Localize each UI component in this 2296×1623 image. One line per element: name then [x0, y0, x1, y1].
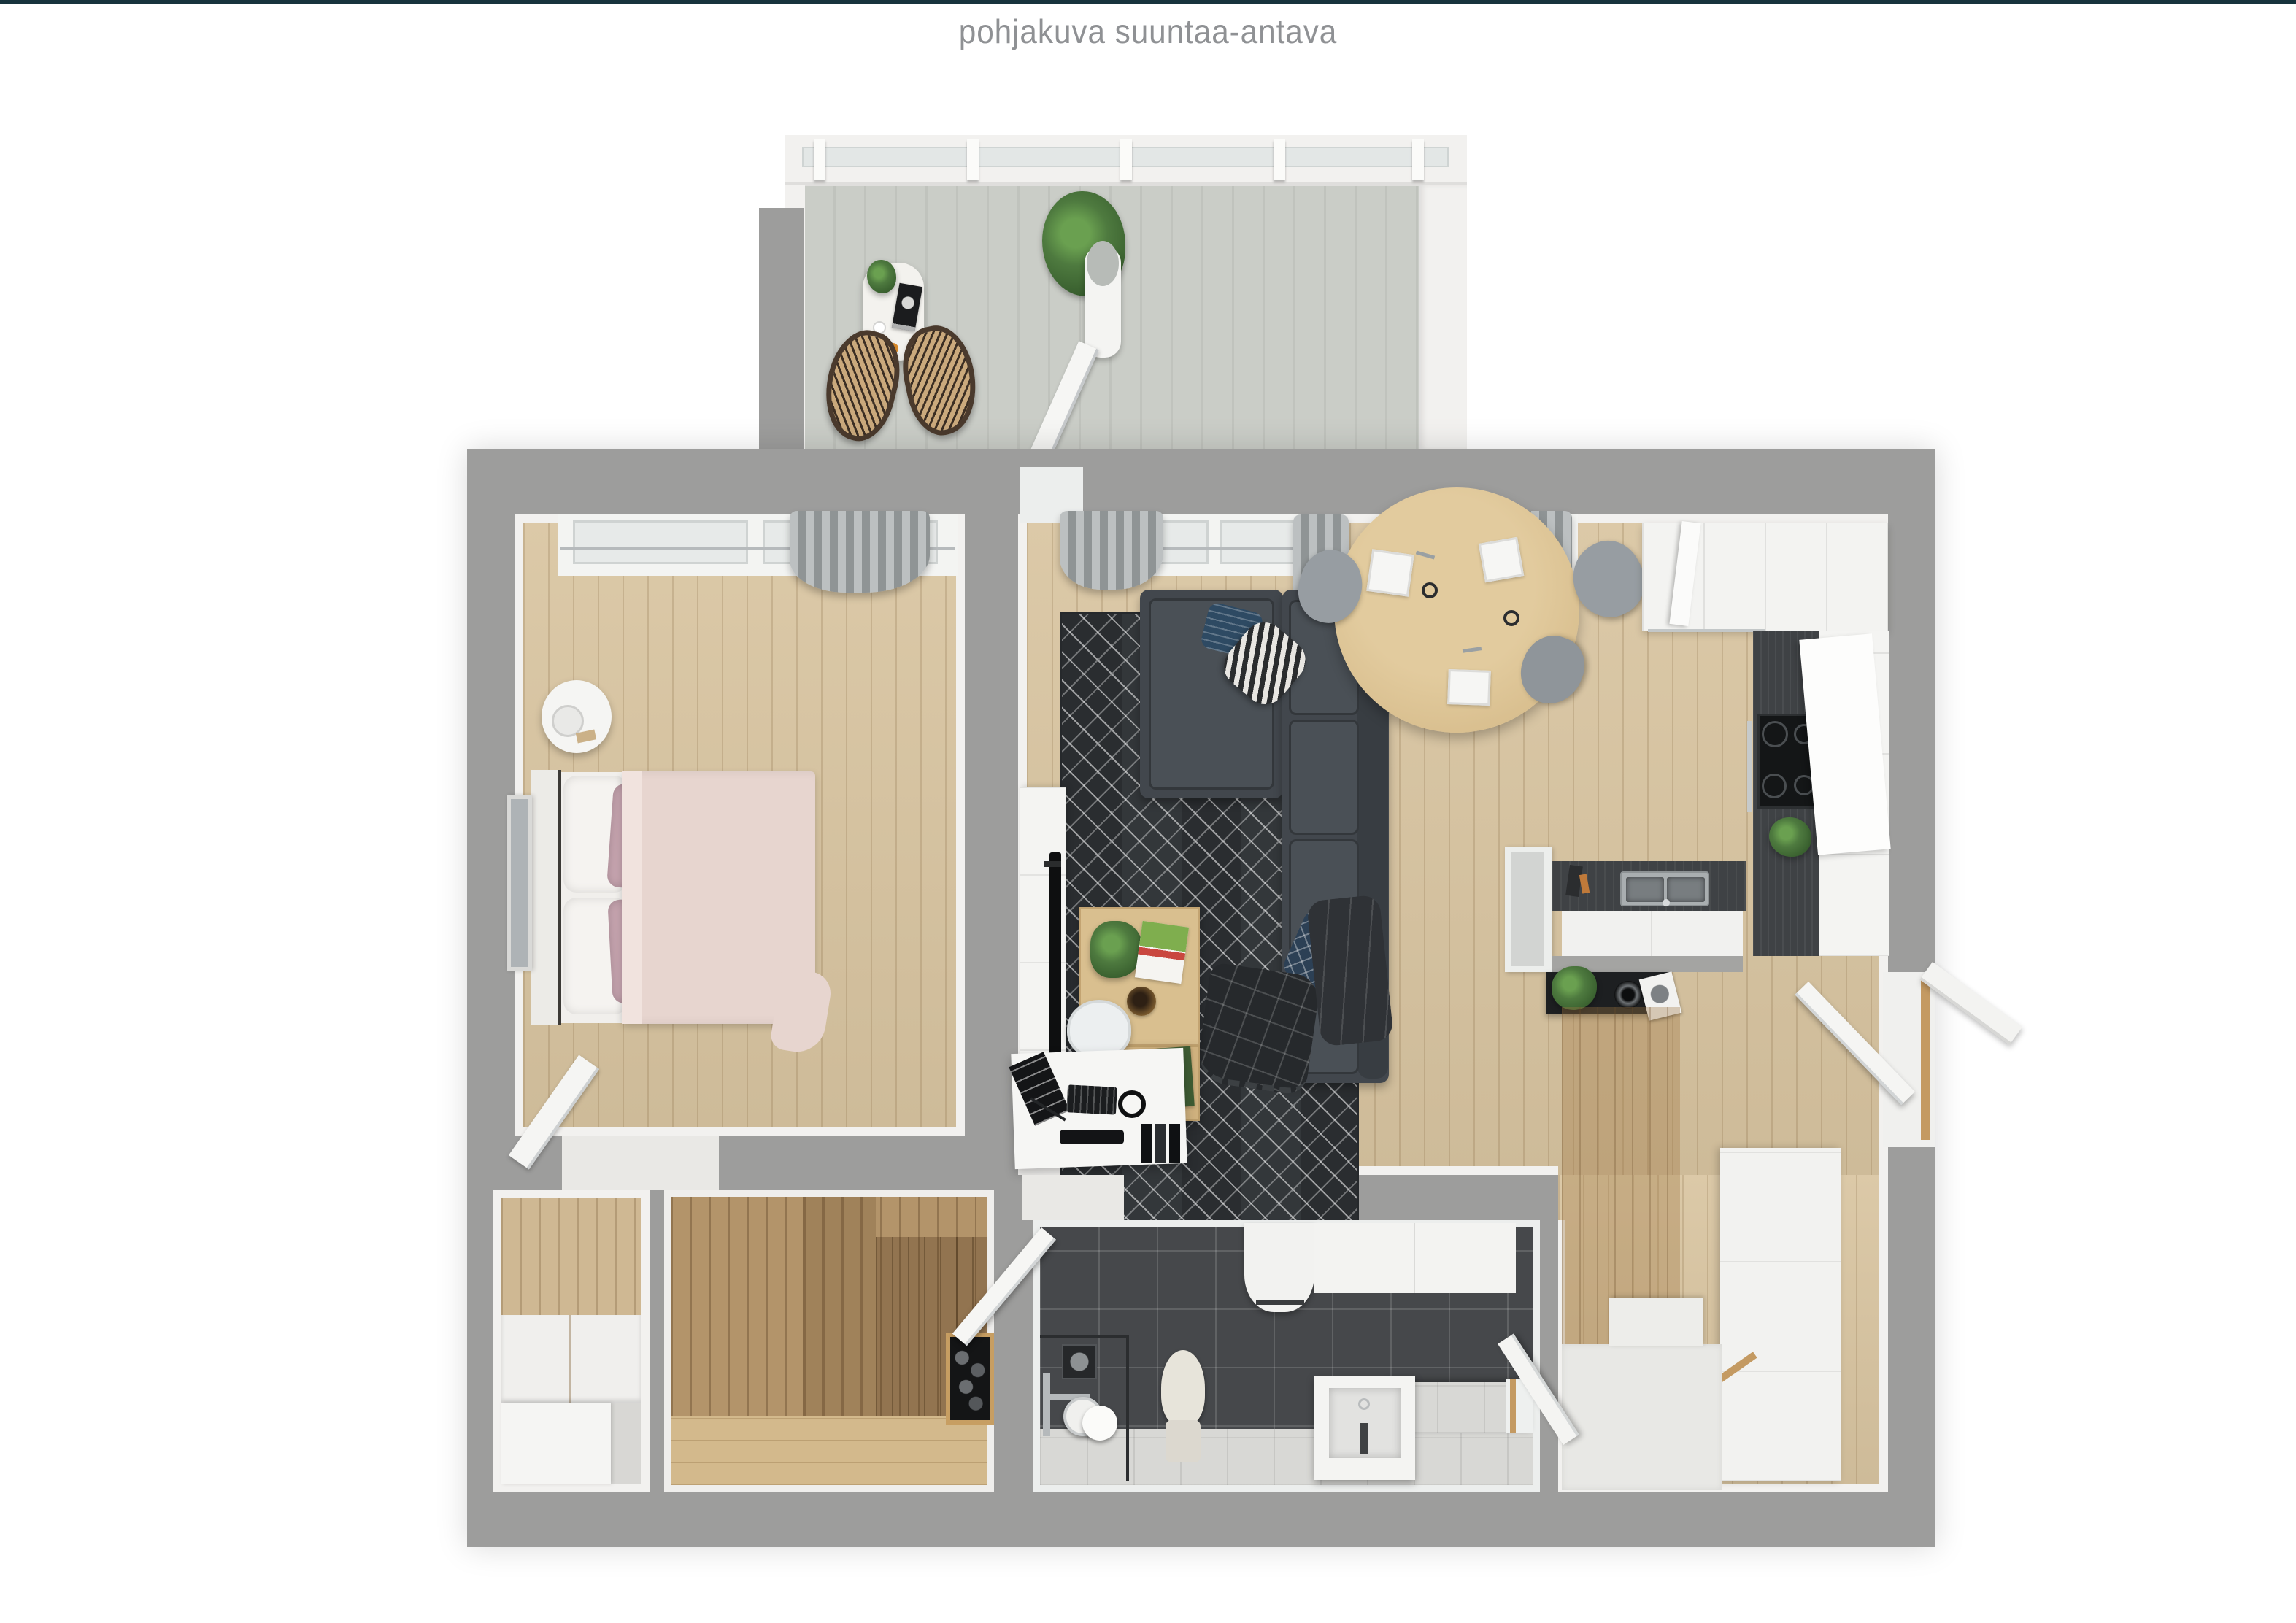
peninsula-end-top — [1511, 852, 1544, 966]
sofa-seat-cushion — [1289, 720, 1359, 835]
bathroom-cabinet — [1314, 1223, 1516, 1293]
balcony-railing-right — [1419, 185, 1467, 450]
closet-room — [493, 1190, 650, 1492]
kitchen-towel-rail — [1648, 629, 1765, 632]
railing-post — [1274, 139, 1285, 180]
dining-glass — [1422, 582, 1438, 598]
bed-headboard — [531, 770, 561, 1025]
closet-wood-wall — [501, 1198, 641, 1315]
sideboard-bowl — [1614, 981, 1642, 1009]
sofa-throw-blanket-fold — [1306, 894, 1394, 1046]
washing-machine-handle — [1256, 1300, 1304, 1305]
picture-frame — [507, 795, 532, 971]
desk-binder — [1169, 1124, 1180, 1163]
hall-entry-mat — [1562, 1344, 1722, 1490]
bathroom-doorway — [1022, 1175, 1124, 1220]
balcony-side-wall — [759, 208, 804, 450]
bedroom-curtain — [790, 511, 930, 593]
railing-post — [814, 139, 825, 180]
bathroom-sink-faucet — [1360, 1423, 1368, 1454]
dining-plate — [1366, 549, 1414, 597]
sauna-floor — [671, 1416, 987, 1485]
toilet-tank — [1161, 1350, 1205, 1426]
railing-post — [1412, 139, 1424, 180]
bathroom-sink-drain — [1358, 1398, 1370, 1410]
tv-screen — [1049, 852, 1061, 1071]
cooktop-burner — [1762, 721, 1788, 747]
sauna-room — [664, 1190, 994, 1492]
bedroom-window-pane — [573, 520, 748, 564]
desk-binder — [1141, 1124, 1152, 1163]
page-title: pohjakuva suuntaa-antava — [959, 12, 1338, 51]
dining-glass — [1503, 610, 1519, 626]
bedroom-doorway — [562, 1136, 719, 1190]
sink-basin — [1626, 877, 1664, 902]
entry-door-frame-wood — [1921, 979, 1930, 1140]
toilet-base — [1166, 1420, 1201, 1462]
desk-keyboard — [1066, 1084, 1117, 1115]
desk-binder — [1155, 1124, 1166, 1163]
sink-basin — [1667, 877, 1705, 902]
floorplan-page: pohjakuva suuntaa-antava — [0, 0, 2296, 1623]
balcony-heater-top — [1087, 241, 1119, 286]
towel-roll — [1082, 1406, 1117, 1441]
sauna-bench-panel — [803, 1197, 876, 1416]
hall-step — [1609, 1298, 1703, 1346]
oven-handle — [1747, 721, 1752, 812]
shower-glass-side — [1126, 1335, 1129, 1481]
sauna-heater — [946, 1333, 994, 1425]
bed-blanket-fold — [622, 771, 642, 1024]
dining-plate — [1479, 537, 1525, 583]
railing-post — [1120, 139, 1132, 180]
tv-stand-foot — [1044, 861, 1061, 867]
closet-bench — [501, 1315, 641, 1403]
kitchen-counter-plant — [1769, 817, 1811, 857]
balcony-railing-top — [785, 135, 1467, 186]
railing-post — [967, 139, 979, 180]
entry-door-recess — [1883, 972, 1935, 1147]
coffee-table-bowl — [1127, 987, 1156, 1016]
hall-wardrobe — [1720, 1148, 1841, 1481]
shower-bar — [1043, 1373, 1050, 1436]
desk-monitor — [1060, 1130, 1124, 1144]
washing-machine — [1244, 1223, 1314, 1312]
desk-headphones — [1118, 1090, 1146, 1118]
living-curtain — [1060, 511, 1163, 590]
balcony-table-plant — [867, 260, 896, 293]
shower-mixer-box — [1062, 1344, 1097, 1379]
kitchen-sink — [1620, 871, 1709, 906]
sofa-throw-blanket — [1195, 962, 1321, 1096]
coffee-table-book — [1135, 921, 1189, 984]
peninsula-front — [1562, 911, 1743, 956]
closet-cabinet — [501, 1403, 611, 1484]
bathroom — [1033, 1220, 1540, 1492]
shower-glass-top — [1040, 1335, 1129, 1338]
top-accent-line — [0, 0, 2296, 4]
cooktop-burner — [1762, 774, 1787, 798]
sink-faucet — [1663, 899, 1670, 906]
dining-plate — [1447, 669, 1491, 706]
bathroom-light-floor — [1040, 1429, 1533, 1485]
